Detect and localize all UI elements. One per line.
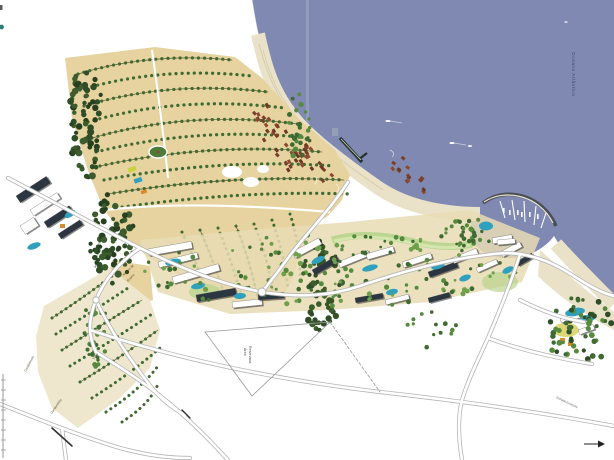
tree bbox=[198, 281, 202, 285]
tree bbox=[203, 287, 208, 292]
tree bbox=[434, 323, 438, 327]
tree bbox=[72, 135, 79, 142]
tree bbox=[162, 266, 166, 270]
tree bbox=[487, 240, 491, 244]
tree bbox=[308, 264, 313, 269]
tree bbox=[339, 299, 343, 303]
tree bbox=[592, 339, 597, 344]
tree bbox=[267, 266, 271, 270]
tree bbox=[586, 320, 592, 326]
tree bbox=[287, 112, 292, 117]
tree bbox=[458, 241, 462, 245]
tree bbox=[92, 105, 98, 111]
tree bbox=[101, 218, 107, 224]
tree bbox=[569, 296, 573, 300]
tree bbox=[379, 246, 382, 249]
tree bbox=[87, 128, 94, 135]
tree bbox=[76, 123, 83, 130]
master-plan-map: Oceano Atlântico Área Reservada Núcleo d… bbox=[0, 0, 614, 460]
tree bbox=[397, 263, 401, 267]
tree bbox=[450, 328, 455, 333]
tree bbox=[315, 246, 320, 251]
tree bbox=[309, 312, 314, 317]
condominio-label: Condomínio bbox=[23, 355, 35, 372]
tree bbox=[284, 268, 289, 273]
tree bbox=[91, 84, 97, 90]
tree bbox=[305, 137, 309, 141]
tree bbox=[492, 271, 495, 274]
tree bbox=[598, 354, 604, 360]
tree bbox=[90, 99, 95, 104]
tree bbox=[443, 321, 448, 326]
tree bbox=[424, 277, 428, 281]
tree bbox=[290, 142, 295, 147]
tree bbox=[336, 269, 340, 273]
tree bbox=[207, 298, 211, 302]
tree bbox=[325, 251, 329, 255]
tree bbox=[552, 340, 556, 344]
tree bbox=[564, 352, 568, 356]
tree bbox=[177, 251, 181, 255]
tree bbox=[420, 312, 424, 316]
tree bbox=[92, 77, 97, 82]
tree bbox=[367, 297, 371, 301]
tree bbox=[294, 108, 298, 112]
tree bbox=[261, 242, 264, 245]
tree bbox=[333, 313, 339, 319]
tree bbox=[341, 244, 345, 248]
tree bbox=[298, 126, 302, 130]
tree bbox=[488, 275, 491, 278]
tree bbox=[74, 82, 80, 88]
tree bbox=[332, 295, 335, 298]
tree bbox=[603, 306, 608, 311]
tree bbox=[478, 238, 482, 242]
tree bbox=[583, 334, 587, 338]
tree bbox=[340, 248, 343, 251]
tree bbox=[110, 246, 115, 251]
tree bbox=[363, 251, 368, 256]
tree bbox=[592, 313, 597, 318]
tree bbox=[364, 235, 368, 239]
tree bbox=[307, 117, 310, 120]
tree bbox=[77, 163, 82, 168]
tree bbox=[297, 93, 301, 97]
tree bbox=[462, 244, 466, 248]
tree bbox=[87, 140, 94, 147]
tree bbox=[120, 219, 125, 224]
roundabout bbox=[258, 288, 266, 296]
tree bbox=[298, 278, 303, 283]
tree bbox=[301, 271, 305, 275]
tree bbox=[406, 323, 410, 327]
tree bbox=[93, 161, 97, 165]
tree bbox=[310, 288, 314, 292]
tree bbox=[304, 110, 307, 113]
tree bbox=[291, 153, 296, 158]
tree bbox=[298, 141, 303, 146]
tree bbox=[83, 121, 89, 127]
tree bbox=[86, 105, 90, 109]
tree bbox=[265, 236, 268, 239]
tree bbox=[471, 239, 476, 244]
tree bbox=[293, 147, 298, 152]
tree bbox=[147, 261, 150, 264]
ocean-label: Oceano Atlântico bbox=[571, 52, 576, 96]
tree bbox=[201, 296, 206, 301]
tree bbox=[405, 283, 408, 286]
tree bbox=[287, 121, 291, 125]
tree bbox=[291, 97, 295, 101]
tree bbox=[586, 326, 591, 331]
tree bbox=[157, 283, 161, 287]
tree bbox=[596, 299, 602, 305]
tree bbox=[166, 281, 169, 284]
tree bbox=[349, 268, 354, 273]
tree bbox=[461, 291, 466, 296]
tree bbox=[295, 299, 299, 303]
tree bbox=[467, 239, 471, 243]
tree bbox=[600, 318, 604, 322]
tree bbox=[93, 117, 98, 122]
tree bbox=[458, 220, 462, 224]
tree bbox=[104, 248, 109, 253]
tree bbox=[112, 203, 118, 209]
tree bbox=[352, 234, 356, 238]
tree bbox=[183, 280, 187, 284]
tree bbox=[275, 288, 278, 291]
tree bbox=[465, 223, 469, 227]
tree bbox=[412, 245, 417, 250]
tree bbox=[239, 274, 243, 278]
tree bbox=[309, 304, 315, 310]
roundabout bbox=[93, 297, 99, 303]
tree bbox=[550, 334, 555, 339]
tree bbox=[338, 260, 341, 263]
tree bbox=[498, 261, 502, 265]
pier-structure bbox=[332, 128, 338, 136]
marina-lagoon-pool bbox=[479, 222, 493, 231]
tree bbox=[126, 224, 133, 231]
park-center-dot bbox=[157, 151, 159, 153]
tree bbox=[86, 348, 90, 352]
tree bbox=[95, 99, 100, 104]
tree bbox=[296, 287, 301, 292]
tree bbox=[605, 312, 611, 318]
tree bbox=[81, 109, 86, 114]
tree bbox=[106, 255, 111, 260]
tree bbox=[472, 231, 476, 235]
tree bbox=[415, 286, 419, 290]
tree bbox=[476, 218, 480, 222]
reserved-area-boundary bbox=[205, 322, 380, 396]
tree bbox=[94, 218, 99, 223]
tree bbox=[390, 303, 394, 307]
tree bbox=[193, 264, 196, 267]
tree bbox=[237, 270, 240, 273]
tree bbox=[337, 294, 341, 298]
accent-building bbox=[60, 224, 65, 228]
tree bbox=[231, 249, 234, 252]
tree bbox=[84, 93, 89, 98]
tree bbox=[80, 138, 87, 145]
tree bbox=[480, 230, 483, 233]
tree bbox=[72, 88, 79, 95]
tree bbox=[71, 104, 75, 108]
tree bbox=[425, 258, 430, 263]
tree bbox=[564, 321, 569, 326]
tree bbox=[343, 267, 348, 272]
tree bbox=[424, 345, 429, 350]
tree bbox=[92, 362, 97, 367]
tree bbox=[444, 281, 449, 286]
tree bbox=[99, 93, 103, 97]
tree bbox=[583, 315, 587, 319]
tree bbox=[292, 136, 297, 141]
tree bbox=[319, 281, 324, 286]
tree bbox=[122, 244, 127, 249]
tree bbox=[75, 149, 82, 156]
tree bbox=[122, 212, 128, 218]
tree bbox=[439, 331, 443, 335]
road-label: Estrada Existente bbox=[556, 395, 579, 409]
tree bbox=[333, 260, 337, 264]
tree bbox=[459, 233, 464, 238]
tree bbox=[367, 291, 372, 296]
tree bbox=[111, 252, 116, 257]
tree bbox=[288, 271, 293, 276]
tree bbox=[111, 217, 115, 221]
tree bbox=[270, 242, 274, 246]
tree bbox=[579, 313, 584, 318]
tree bbox=[83, 331, 87, 335]
tree bbox=[432, 333, 435, 336]
tree bbox=[383, 240, 386, 243]
tree bbox=[270, 286, 273, 289]
tree bbox=[411, 317, 415, 321]
tree bbox=[84, 70, 89, 75]
tree bbox=[480, 263, 484, 267]
tree bbox=[84, 308, 88, 312]
tree bbox=[441, 287, 445, 291]
tree bbox=[405, 290, 408, 293]
tree bbox=[94, 148, 99, 153]
tree bbox=[384, 285, 389, 290]
tree bbox=[165, 285, 170, 290]
tree bbox=[89, 242, 93, 246]
direction-arrow-icon bbox=[584, 441, 605, 448]
tree bbox=[608, 320, 614, 326]
tree bbox=[553, 327, 558, 332]
tree bbox=[567, 325, 573, 331]
tree bbox=[316, 301, 322, 307]
tree bbox=[105, 192, 110, 197]
tree bbox=[574, 349, 579, 354]
tree bbox=[96, 358, 99, 361]
tree bbox=[110, 281, 115, 286]
tree bbox=[334, 243, 339, 248]
tree bbox=[298, 122, 302, 126]
tree bbox=[391, 294, 394, 297]
tree bbox=[406, 262, 411, 267]
tree bbox=[389, 241, 393, 245]
tree bbox=[300, 153, 305, 158]
tree bbox=[173, 267, 178, 272]
tree bbox=[310, 280, 316, 286]
tree bbox=[339, 280, 342, 283]
tree bbox=[84, 174, 89, 179]
tree bbox=[450, 290, 454, 294]
tree bbox=[94, 138, 99, 143]
swimming-pool bbox=[26, 241, 41, 251]
tree bbox=[72, 111, 76, 115]
tree bbox=[461, 230, 465, 234]
tree bbox=[88, 249, 93, 254]
tree bbox=[116, 246, 121, 251]
tree bbox=[73, 74, 78, 79]
tree bbox=[549, 347, 555, 353]
tree bbox=[96, 111, 102, 117]
tree bbox=[345, 274, 349, 278]
tree bbox=[330, 303, 335, 308]
tree bbox=[571, 343, 576, 348]
tree bbox=[352, 253, 355, 256]
tree bbox=[455, 243, 458, 246]
tree bbox=[555, 349, 560, 354]
tree bbox=[92, 212, 98, 218]
tree bbox=[69, 122, 73, 126]
tree bbox=[260, 248, 263, 251]
tree bbox=[71, 149, 76, 154]
tree bbox=[470, 286, 475, 291]
tree bbox=[102, 204, 106, 208]
tree bbox=[103, 349, 107, 353]
tree bbox=[469, 267, 472, 270]
edge-artifact bbox=[0, 5, 3, 10]
tree bbox=[190, 255, 195, 260]
tree bbox=[284, 301, 289, 306]
tree bbox=[412, 322, 415, 325]
tree bbox=[82, 101, 86, 105]
tree bbox=[462, 227, 466, 231]
tree bbox=[411, 240, 414, 243]
tree bbox=[167, 267, 172, 272]
tree bbox=[304, 241, 308, 245]
tree bbox=[248, 246, 251, 249]
tree bbox=[394, 235, 399, 240]
tree bbox=[389, 251, 393, 255]
tree bbox=[444, 231, 447, 234]
tree bbox=[430, 310, 434, 314]
edge-artifact-dot bbox=[0, 25, 4, 30]
tree bbox=[111, 239, 116, 244]
tree bbox=[67, 98, 74, 105]
tree bbox=[369, 236, 372, 239]
tree bbox=[298, 102, 303, 107]
tree bbox=[323, 271, 327, 275]
tree bbox=[460, 249, 463, 252]
tree bbox=[454, 323, 458, 327]
tree bbox=[457, 253, 461, 257]
tree bbox=[590, 353, 596, 359]
tree bbox=[244, 275, 248, 279]
tree bbox=[450, 224, 454, 228]
tree bbox=[326, 315, 332, 321]
tree bbox=[94, 165, 99, 170]
tree bbox=[406, 299, 411, 304]
building bbox=[58, 220, 83, 239]
tree bbox=[569, 337, 573, 341]
tree bbox=[445, 227, 448, 230]
tree bbox=[298, 261, 303, 266]
tree bbox=[439, 234, 443, 238]
reserved-area-label: Área bbox=[243, 348, 247, 356]
tree bbox=[74, 131, 78, 135]
tree bbox=[581, 298, 585, 302]
tree bbox=[400, 236, 405, 241]
tree bbox=[465, 289, 470, 294]
tree bbox=[569, 308, 574, 313]
tree bbox=[269, 253, 273, 257]
tree bbox=[582, 348, 586, 352]
tree bbox=[419, 238, 422, 241]
tree bbox=[114, 222, 120, 228]
tree bbox=[96, 325, 101, 330]
tree bbox=[548, 319, 553, 324]
tree bbox=[334, 283, 337, 286]
tree bbox=[101, 237, 107, 243]
tree bbox=[467, 219, 471, 223]
tree bbox=[453, 219, 458, 224]
tree bbox=[576, 298, 581, 303]
tree bbox=[273, 250, 277, 254]
tree bbox=[595, 324, 599, 328]
tree bbox=[304, 259, 308, 263]
tree bbox=[143, 270, 146, 273]
reserved-area-label2: Reservada bbox=[248, 346, 252, 363]
tree bbox=[589, 332, 595, 338]
tree bbox=[454, 279, 457, 282]
tree bbox=[89, 172, 96, 179]
tree bbox=[557, 340, 563, 346]
tree bbox=[308, 126, 311, 129]
